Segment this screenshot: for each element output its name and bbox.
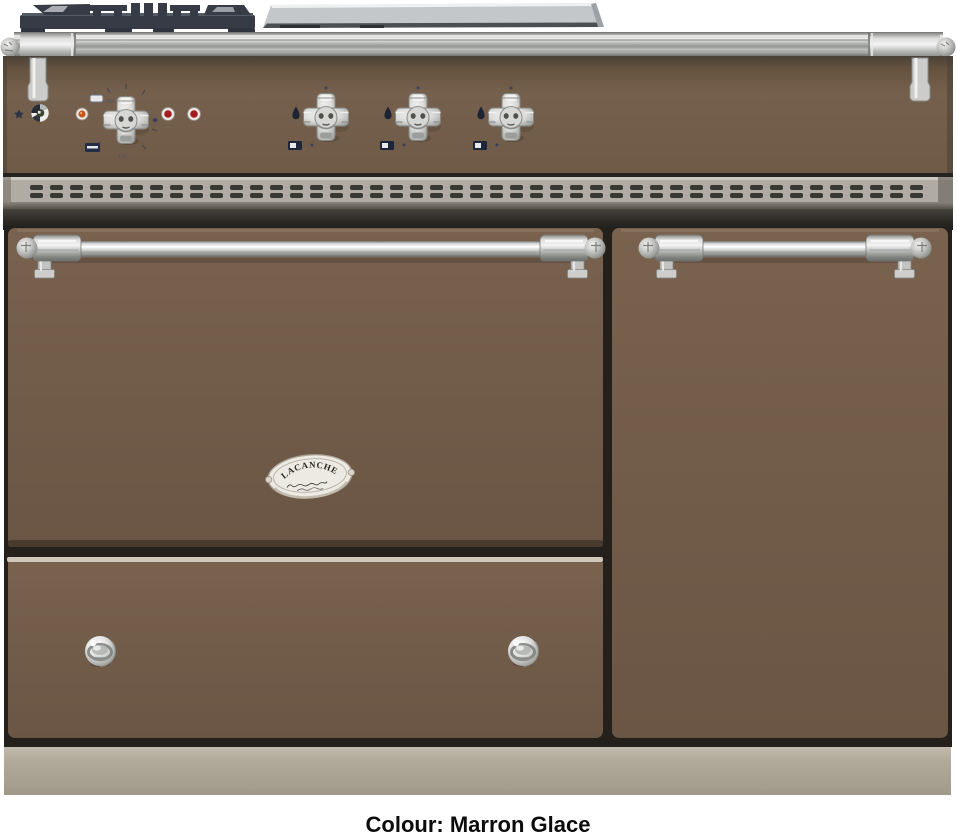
svg-text:250: 250 (106, 99, 115, 105)
svg-text:150: 150 (118, 154, 127, 160)
svg-text:Colour: Marron Glace: Colour: Marron Glace (366, 812, 591, 837)
